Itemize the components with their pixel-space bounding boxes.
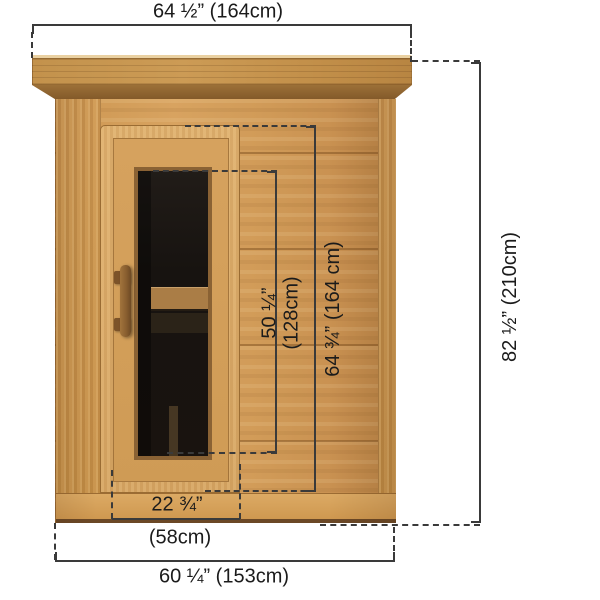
dimension-line-bottom xyxy=(55,560,395,562)
diagram-canvas: 64 ½” (164cm) 82 ½” (210cm) 50 ¼” (128cm… xyxy=(0,0,600,600)
window-height-inches: 50 ¼” xyxy=(259,276,281,349)
interior-post xyxy=(169,406,178,456)
sauna-crown-board xyxy=(32,58,412,85)
door-width-inches-label: 22 ¾” xyxy=(151,494,202,517)
extension-line-door-top xyxy=(185,125,316,127)
sauna-crown-bevel xyxy=(32,85,412,99)
extension-line-right-bottom xyxy=(320,524,480,526)
dim-tick xyxy=(267,451,277,453)
interior-bench-shadow xyxy=(151,313,208,333)
dim-tick xyxy=(306,490,316,492)
dimension-line-top xyxy=(32,24,412,26)
sauna-door xyxy=(100,125,240,493)
extension-line-bottom-left xyxy=(54,523,56,560)
extension-line-window-top xyxy=(153,170,277,172)
door-width-cm-label: (58cm) xyxy=(149,527,211,550)
extension-line-doorwidth-right xyxy=(239,464,241,519)
dimension-line-door-height xyxy=(314,126,316,492)
dimension-line-right xyxy=(479,62,481,523)
overall-height-label: 82 ½” (210cm) xyxy=(500,232,522,362)
door-height-label: 64 ¾” (164 cm) xyxy=(323,241,345,377)
extension-line-right-top xyxy=(412,60,480,62)
dim-tick xyxy=(471,62,481,64)
glass-shadow xyxy=(138,171,151,456)
dim-tick xyxy=(306,126,316,128)
dim-tick xyxy=(471,521,481,523)
base-width-label: 60 ¼” (153cm) xyxy=(159,566,289,589)
extension-line-window-bottom xyxy=(167,452,277,454)
extension-line-bottom-right xyxy=(393,527,395,560)
extension-line-top-right xyxy=(410,32,412,62)
window-height-cm: (128cm) xyxy=(281,276,303,349)
extension-line-top-left xyxy=(31,32,33,58)
overall-width-label: 64 ½” (164cm) xyxy=(153,1,283,24)
door-handle xyxy=(120,265,131,337)
interior-bench-backrest xyxy=(151,287,208,311)
window-height-label: 50 ¼” (128cm) xyxy=(259,276,302,349)
extension-line-doorwidth-left xyxy=(111,470,113,519)
dimension-line-door-width xyxy=(112,518,240,520)
dim-tick xyxy=(267,171,277,173)
extension-line-door-bottom xyxy=(205,490,316,492)
door-window-glass xyxy=(138,171,208,456)
